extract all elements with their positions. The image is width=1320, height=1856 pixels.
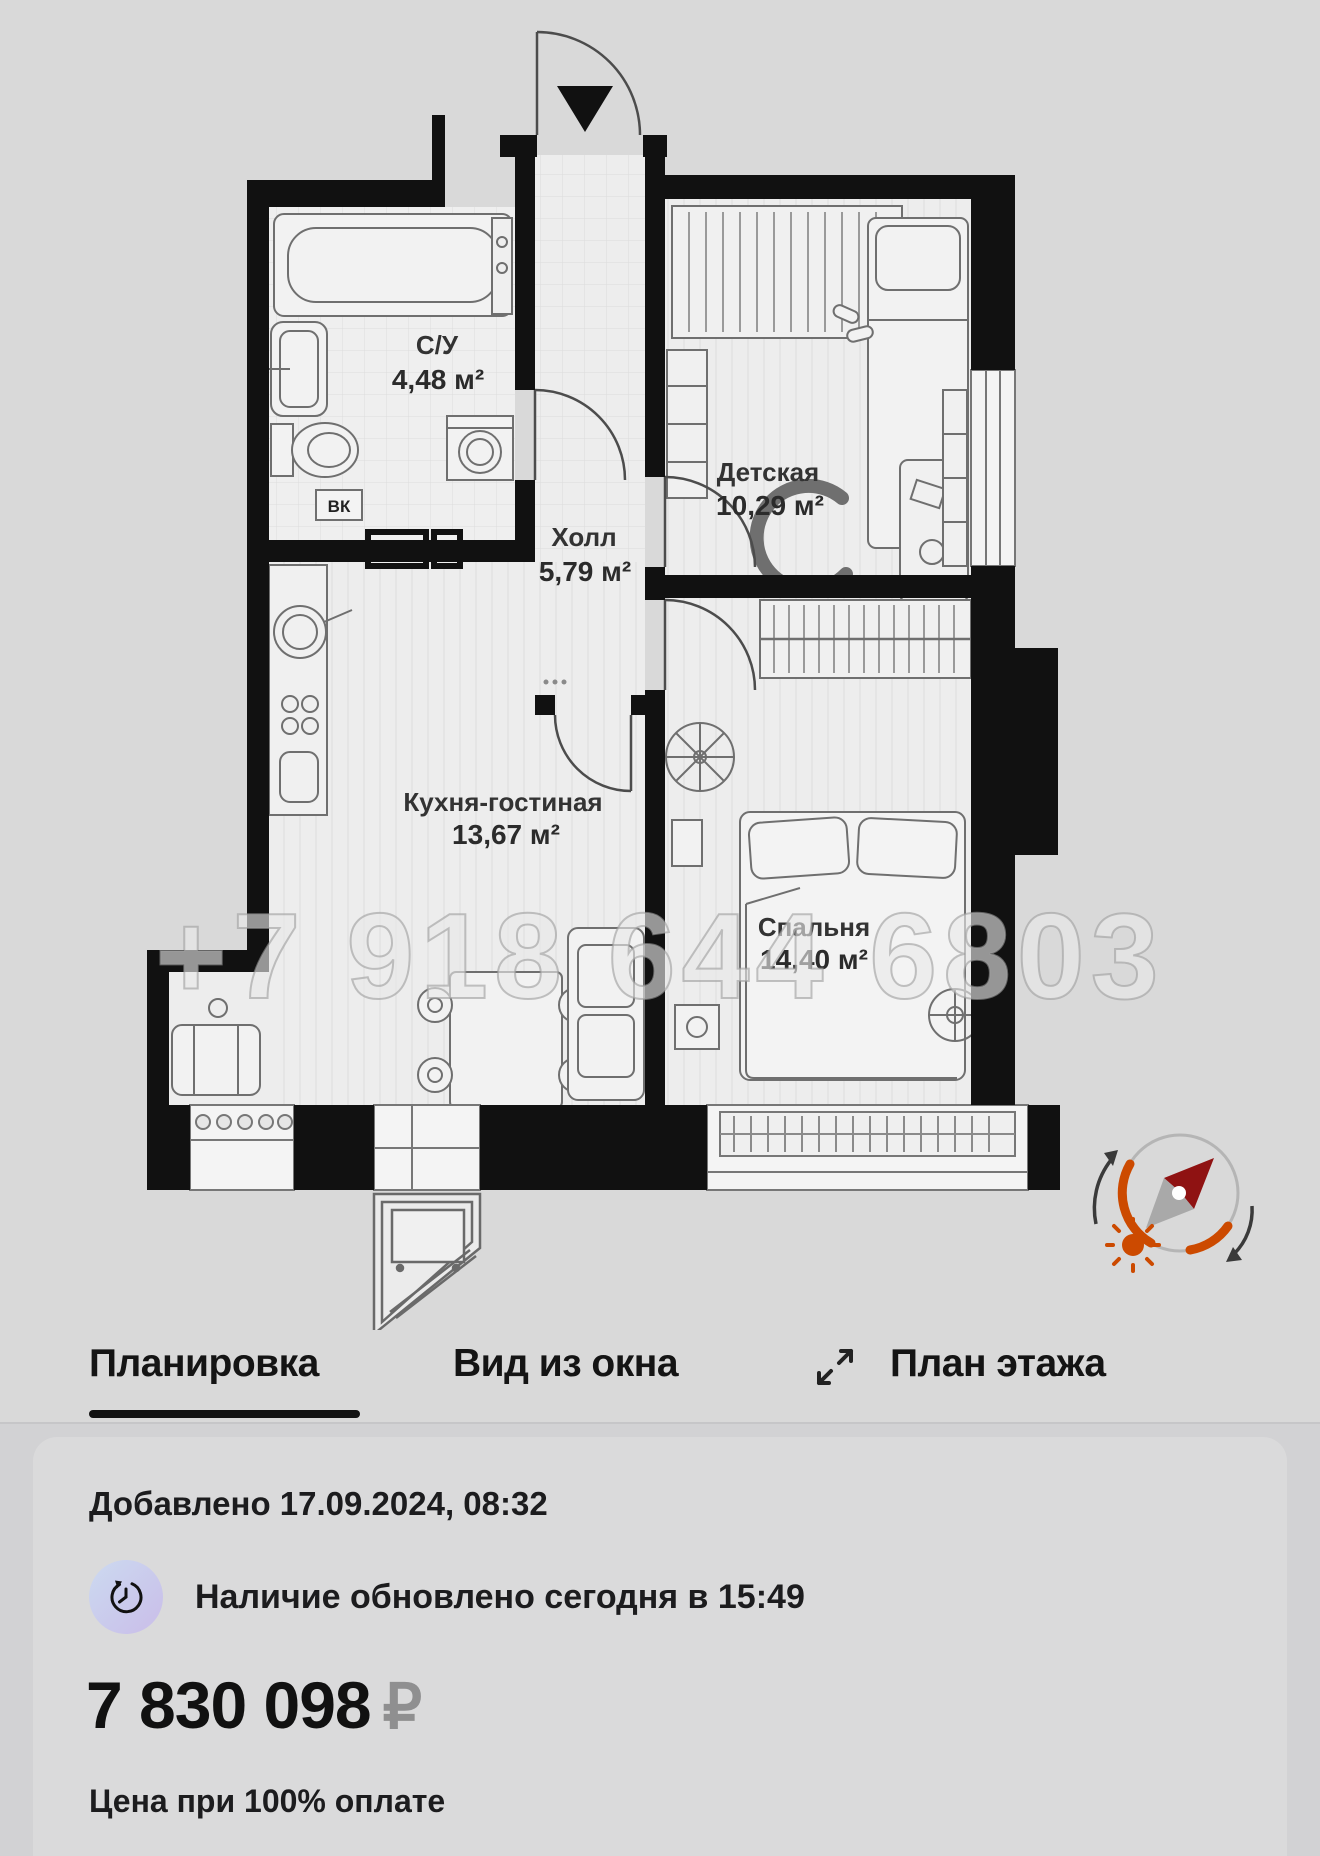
room-label-kitchen: Кухня-гостиная [403,787,602,817]
sun-icon [1107,1219,1159,1271]
ruble-sign: ₽ [383,1673,422,1742]
added-date: Добавлено 17.09.2024, 08:32 [89,1485,548,1523]
tab-vid-iz-okna[interactable]: Вид из окна [453,1342,678,1386]
water-meter-label: ВК [328,497,351,516]
room-label-hall: Холл [551,522,616,552]
listing-info-card: Добавлено 17.09.2024, 08:32 Наличие обно… [33,1437,1287,1856]
gallery-tabs: Планировка Вид из окна План этажа [0,1330,1320,1422]
room-area-hall: 5,79 м² [539,556,631,587]
tab-plan-etazha[interactable]: План этажа [890,1342,1106,1386]
room-label-bathroom: С/У [416,330,459,360]
balcony [374,1194,480,1330]
tab-planirovka[interactable]: Планировка [89,1342,319,1386]
room-area-kids: 10,29 м² [716,490,824,521]
room-area-kitchen: 13,67 м² [452,819,560,850]
entrance-marker [557,86,613,132]
floor-plan-svg: С/У 4,48 м² Холл 5,79 м² Детская 10,29 м… [100,20,1320,1330]
availability-row: Наличие обновлено сегодня в 15:49 [89,1559,805,1635]
expand-icon[interactable] [812,1344,858,1390]
availability-text: Наличие обновлено сегодня в 15:49 [195,1578,805,1617]
watermark-phone: +7 918 644 6803 [155,888,1164,1024]
compass-icon [1094,1135,1252,1271]
active-tab-underline [89,1410,360,1418]
price-note: Цена при 100% оплате [89,1783,445,1820]
availability-updated-icon [89,1560,163,1634]
price-row: 7 830 098₽ [86,1667,422,1743]
price-value: 7 830 098 [86,1668,371,1742]
room-area-bathroom: 4,48 м² [392,364,484,395]
room-label-kids: Детская [717,457,819,487]
floor-plan-image: С/У 4,48 м² Холл 5,79 м² Детская 10,29 м… [100,20,1320,1330]
listing-screen: С/У 4,48 м² Холл 5,79 м² Детская 10,29 м… [0,0,1320,1856]
